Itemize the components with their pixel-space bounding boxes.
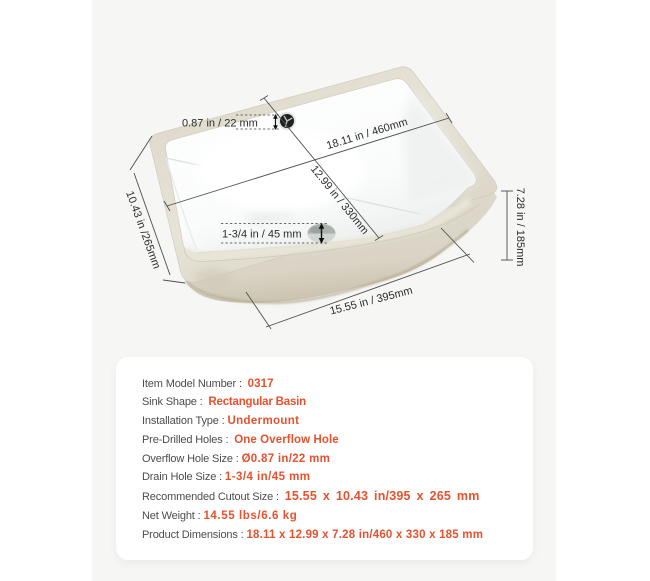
svg-text:7.28 in / 185mm: 7.28 in / 185mm	[514, 188, 526, 267]
svg-text:10.43 in /265mm: 10.43 in /265mm	[123, 189, 162, 270]
svg-text:1-3/4 in / 45 mm: 1-3/4 in / 45 mm	[222, 229, 301, 241]
svg-text:0.87 in / 22 mm: 0.87 in / 22 mm	[182, 118, 258, 130]
